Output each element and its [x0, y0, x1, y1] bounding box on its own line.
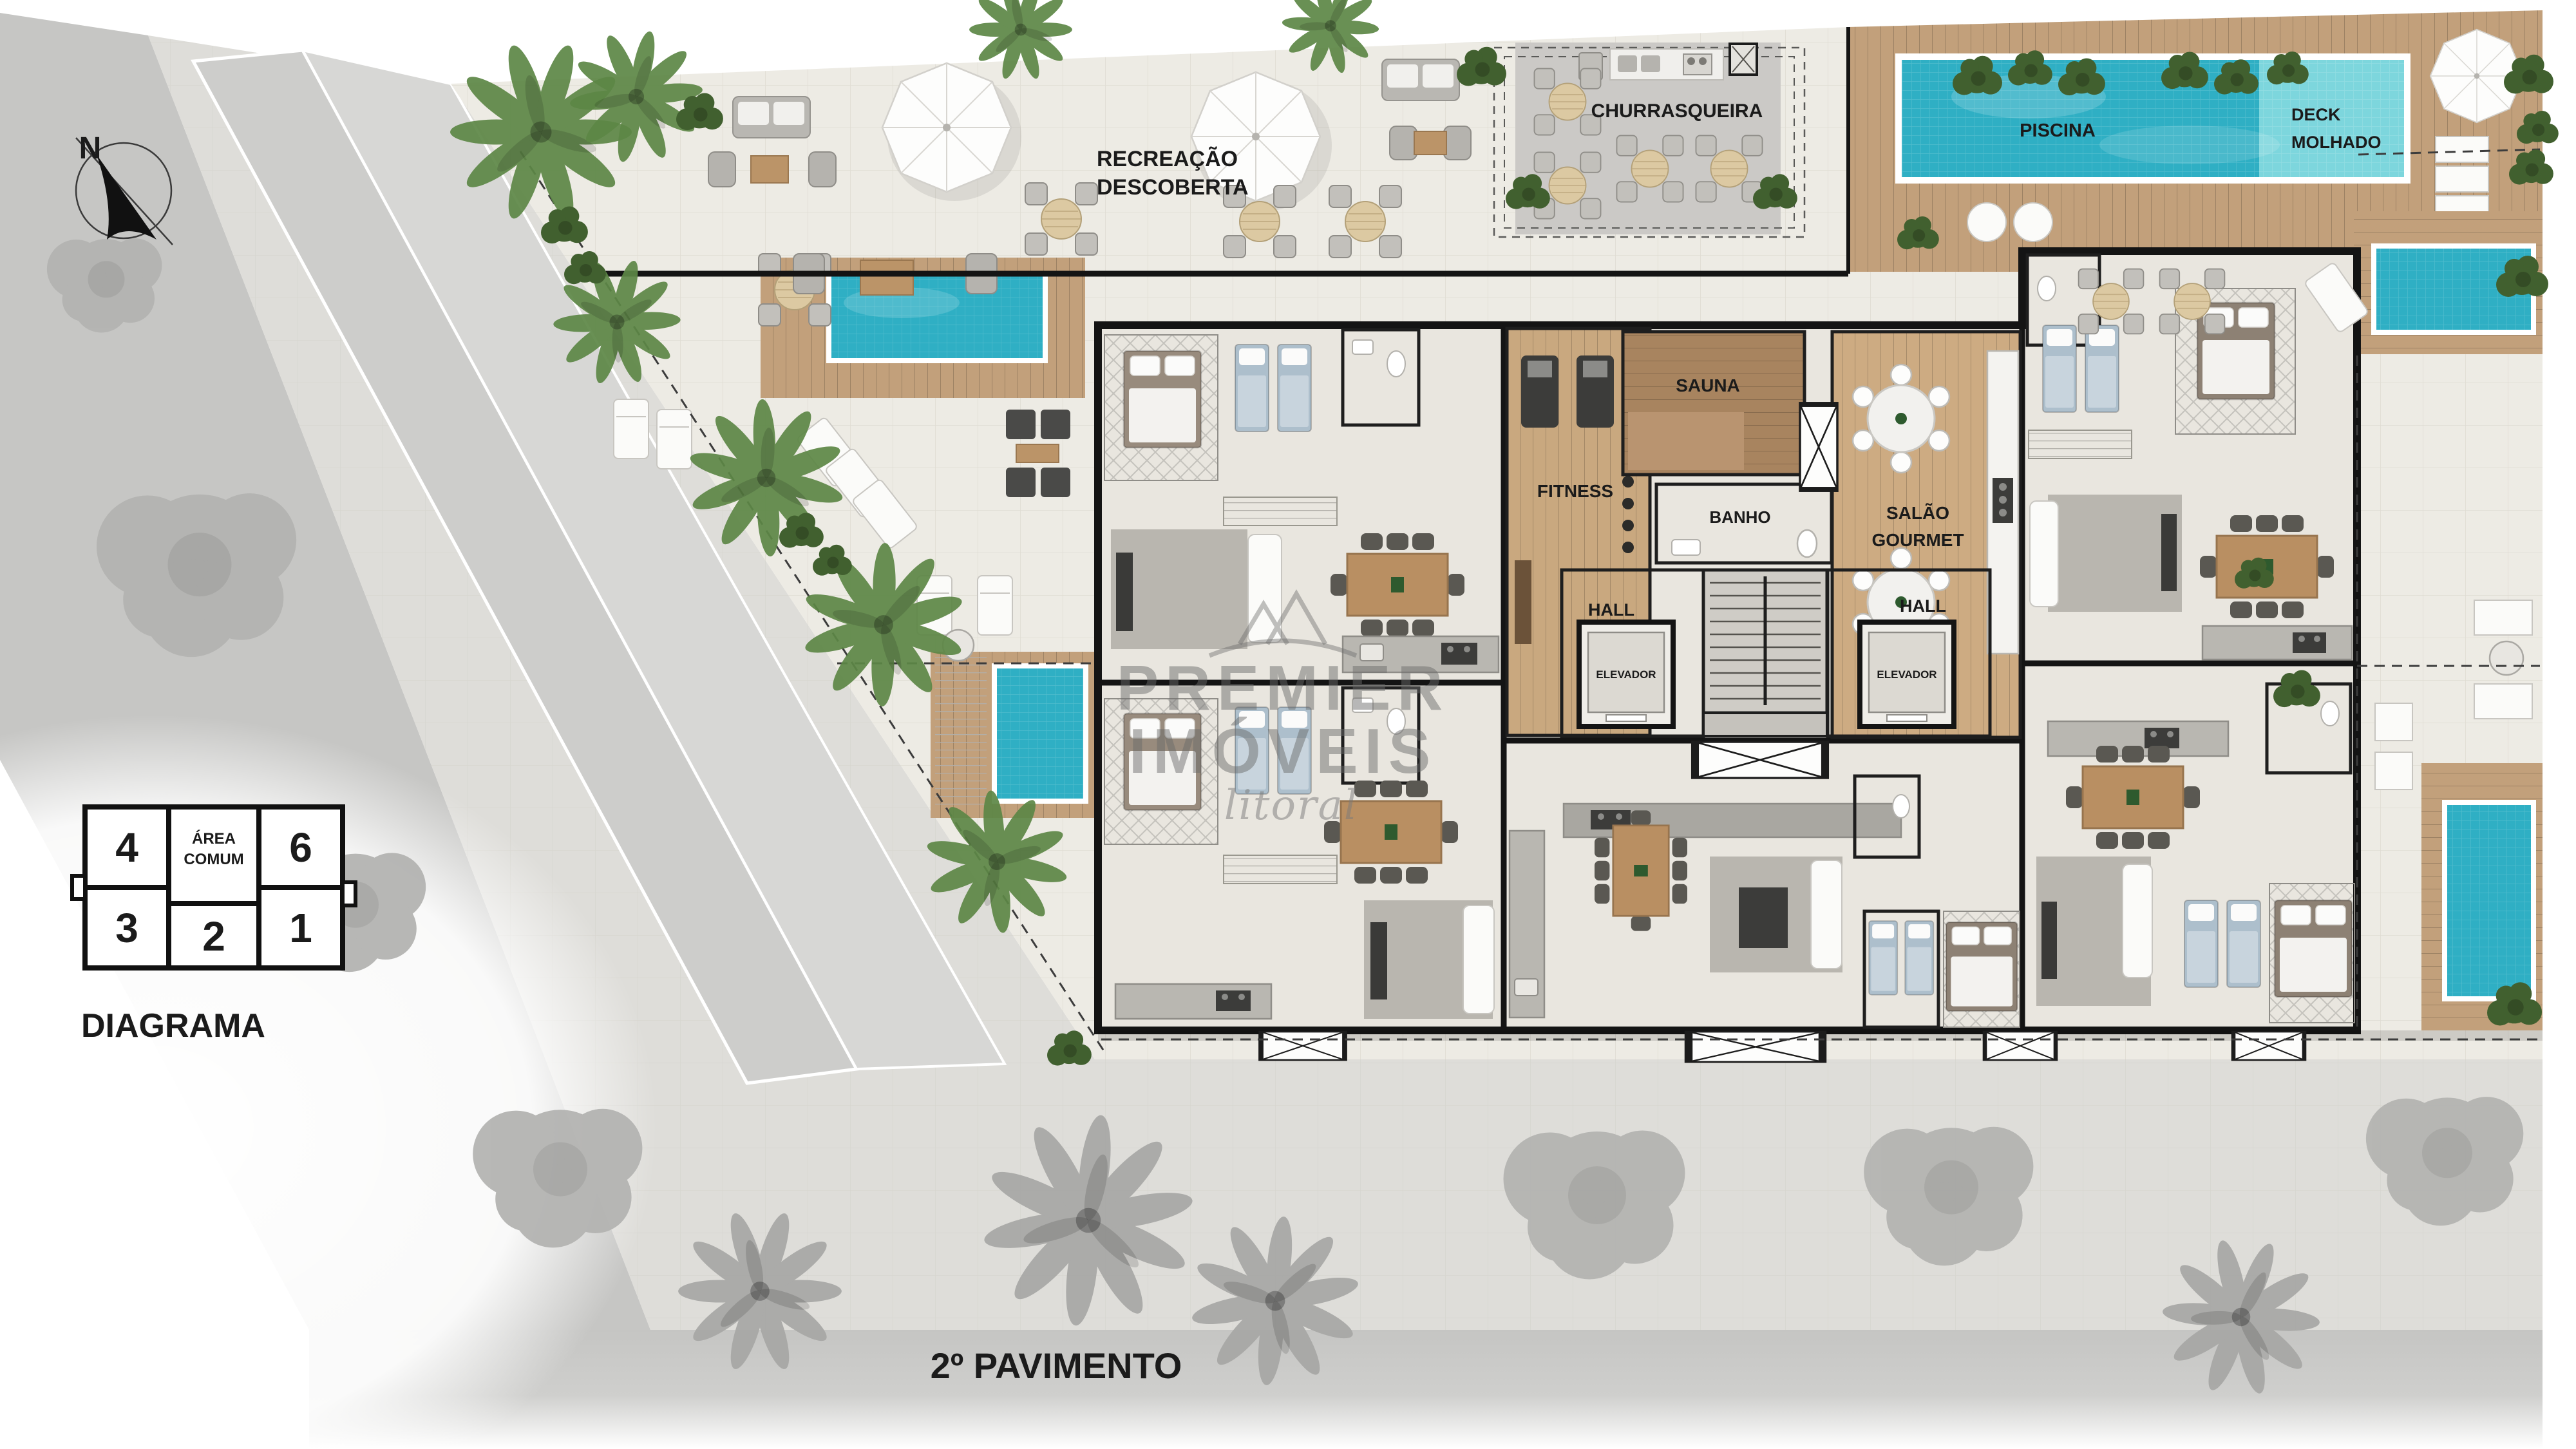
round-lounger [1967, 203, 2006, 241]
wardrobe [1224, 497, 1337, 526]
tv-panel [2161, 514, 2177, 591]
sun-lounger [2474, 684, 2532, 719]
wardrobe [1224, 855, 1337, 884]
elevator-right: ELEVADOR [1860, 622, 1954, 726]
sofa [2030, 501, 2058, 607]
sun-lounger [614, 399, 649, 459]
floor-plan-canvas: PISCINA DECK MOLHADO [0, 0, 2576, 1449]
tv-panel [1370, 922, 1387, 999]
sofa [2123, 864, 2152, 978]
toilet [1797, 530, 1817, 557]
bbq-sink [1641, 55, 1660, 72]
diagram-title: DIAGRAMA [81, 1007, 265, 1045]
wet-deck-label-1: DECK [2291, 105, 2341, 124]
sofa [1463, 905, 1494, 1014]
unit3-terrace-pool [931, 652, 1098, 818]
coffee-table [1414, 131, 1446, 155]
double-bed [1124, 351, 1201, 448]
legend-area-comum-1: ÁREA [192, 829, 236, 848]
sofa [1382, 59, 1459, 100]
sofa [1811, 860, 1842, 969]
floor-plan-page: PISCINA DECK MOLHADO [0, 0, 2576, 1449]
bbq-sink [1618, 55, 1637, 72]
tv-unit [1739, 887, 1788, 948]
legend-unit-1: 1 [289, 905, 312, 951]
sauna-room: SAUNA [1623, 332, 1804, 475]
gourmet-label-2: GOURMET [1871, 530, 1964, 550]
armchair [1390, 126, 1417, 160]
armchair [809, 152, 836, 187]
stairs [1703, 570, 1827, 736]
watermark-line3: litoral [1224, 782, 1358, 829]
double-bed [2275, 900, 2352, 997]
pool-label: PISCINA [2020, 120, 2096, 141]
elevator-left: ELEVADOR [1579, 622, 1673, 726]
elevator-right-label: ELEVADOR [1877, 668, 1937, 681]
utility-box [1689, 1032, 1823, 1062]
side-table [2490, 641, 2523, 675]
patio-umbrella [882, 63, 1011, 192]
recreation-label-1: RECREAÇÃO [1097, 147, 1238, 171]
kitchen-counter [2202, 626, 2352, 659]
legend-unit-6: 6 [289, 824, 312, 871]
gym-bench [1515, 560, 1531, 644]
watermark-line1: PREMIER [1117, 652, 1450, 723]
bath-label: BANHO [1709, 507, 1770, 527]
wardrobe [2029, 430, 2132, 459]
sauna-label: SAUNA [1676, 375, 1740, 395]
legend-notch-right [343, 882, 355, 905]
floor-title: 2º PAVIMENTO [931, 1345, 1182, 1386]
elevator-left-label: ELEVADOR [1596, 668, 1656, 681]
hall-left-label: HALL [1588, 600, 1634, 620]
shaft-duct [1695, 742, 1825, 778]
armchair [708, 152, 735, 187]
fitness-label: FITNESS [1537, 481, 1613, 501]
watermark-line2: IMÓVEIS [1129, 715, 1437, 786]
gourmet-label-1: SALÃO [1886, 503, 1949, 523]
sun-lounger [2436, 166, 2488, 192]
legend-unit-2: 2 [202, 913, 225, 960]
hall-right-label: HALL [1900, 596, 1946, 616]
sink [1672, 540, 1700, 555]
utility-box [1261, 1032, 1345, 1060]
shaft-duct [1800, 404, 1837, 489]
barbecue-label: CHURRASQUEIRA [1591, 100, 1763, 122]
round-lounger [2014, 203, 2052, 241]
legend-unit-3: 3 [115, 905, 138, 951]
armchair [1444, 126, 1471, 160]
sofa [733, 97, 810, 138]
sun-lounger [657, 410, 692, 469]
coffee-table [751, 156, 788, 183]
terrace-chair [2375, 703, 2412, 741]
bbq-grill [1683, 54, 1712, 75]
tv-panel [2041, 902, 2057, 979]
legend-area-comum-2: COMUM [184, 851, 243, 868]
recreation-label-2: DESCOBERTA [1097, 175, 1249, 200]
utility-box [2233, 1032, 2304, 1060]
sun-lounger [2474, 600, 2532, 635]
tv-panel [1116, 553, 1133, 631]
coffee-table [860, 260, 913, 295]
sun-lounger [978, 576, 1012, 635]
legend-unit-4: 4 [115, 824, 138, 871]
north-label: N [79, 131, 102, 166]
sun-lounger [2436, 137, 2488, 162]
utility-box [1985, 1032, 2056, 1060]
terrace-chair [2375, 752, 2412, 790]
legend-notch-left [72, 876, 85, 899]
wet-deck-label-2: MOLHADO [2291, 133, 2381, 152]
double-bed [1946, 922, 2017, 1011]
